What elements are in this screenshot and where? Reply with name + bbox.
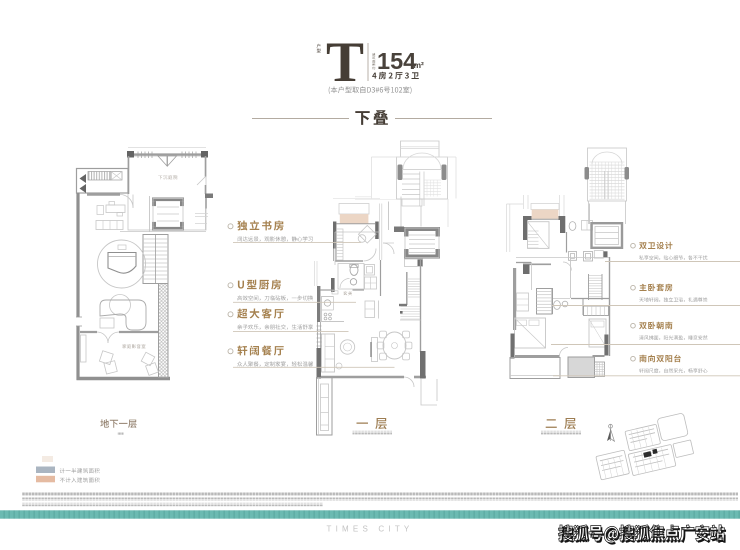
svg-text:T: T <box>326 31 364 94</box>
svg-text:m²: m² <box>414 60 425 70</box>
svg-text:154: 154 <box>377 48 416 74</box>
svg-text:TIMES CITY: TIMES CITY <box>327 525 414 534</box>
